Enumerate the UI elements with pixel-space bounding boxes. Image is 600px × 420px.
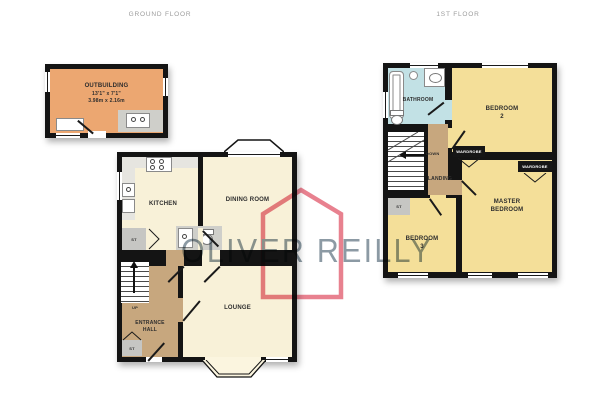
toilet-icon <box>391 115 403 125</box>
wardrobe-right: WARDROBE <box>518 161 552 172</box>
hob-ring-icon <box>159 165 164 170</box>
down-arrow-icon <box>399 151 406 159</box>
sink-icon <box>126 113 150 128</box>
stairs-down-label: DOWN <box>426 151 448 156</box>
wardrobe-door-icon <box>523 173 547 183</box>
floorplan-page: { "headers": { "ground": "GROUND FLOOR",… <box>0 0 600 420</box>
dining-room-label: DINING ROOM <box>203 197 292 205</box>
bedroom3-label-1: BEDROOM <box>388 236 456 244</box>
stairs-arrow-stem <box>133 267 135 293</box>
storage-label: ST <box>396 204 402 209</box>
bathroom-top-window <box>410 63 438 68</box>
master-door-opening <box>448 180 462 195</box>
hob-ring-icon <box>159 159 164 164</box>
sink-basin-icon <box>140 117 145 122</box>
wardrobe-left: WARDROBE <box>453 146 485 157</box>
stairs-up-label: UP <box>121 305 149 310</box>
outbuilding-window <box>56 133 80 138</box>
bedroom3-window <box>398 273 428 278</box>
bedroom2-label-2: 2 <box>452 114 552 122</box>
bedroom2-window <box>482 63 528 68</box>
outbuilding-counter <box>56 118 84 131</box>
wardrobe-door-icon <box>457 158 481 168</box>
round-basin-icon <box>409 71 418 80</box>
bathroom-side-window <box>383 92 388 118</box>
master-window <box>468 273 492 278</box>
lounge-label: LOUNGE <box>183 305 292 313</box>
kitchen-window <box>117 172 122 200</box>
stairs-up <box>121 262 149 303</box>
storage-label: ST <box>129 346 135 351</box>
storage-door-icon <box>122 331 142 341</box>
landing-floor <box>428 124 448 195</box>
entrance-hall-label-1: ENTRANCE <box>122 320 178 326</box>
kitchen-hall-opening <box>166 250 184 266</box>
up-arrow-icon <box>130 261 138 268</box>
cloakroom-basin-icon <box>182 234 187 239</box>
master-bedroom-label-2: BEDROOM <box>462 207 552 215</box>
kitchen-sink-basin-icon <box>126 187 131 192</box>
first-floor-title: 1ST FLOOR <box>393 11 523 18</box>
bedroom3-door-opening <box>430 195 446 198</box>
dining-bay-window <box>224 139 284 153</box>
outbuilding-dims-imperial: 13'1" x 7'1" <box>50 91 163 97</box>
lounge-bay-window <box>202 360 266 383</box>
hall-storage: ST <box>122 340 142 356</box>
master-bedroom-label-1: MASTER <box>462 199 552 207</box>
ground-floor-title: GROUND FLOOR <box>95 11 225 18</box>
outbuilding-dims-metric: 3.98m x 2.16m <box>50 98 163 104</box>
stairs-winders <box>388 132 424 164</box>
ground-storage-mid: ST <box>122 228 146 250</box>
outbuilding-label: OUTBUILDING <box>50 83 163 91</box>
lounge-opening <box>202 250 220 266</box>
outbuilding-window <box>163 78 168 96</box>
bedroom2-door-opening <box>448 128 452 148</box>
bedroom3-label-2: 3 <box>388 244 456 252</box>
bathroom-door-opening <box>445 100 452 120</box>
first-floor-storage: ST <box>388 198 410 215</box>
storage-label: ST <box>131 237 137 242</box>
hob-ring-icon <box>150 165 155 170</box>
master-window <box>518 273 548 278</box>
bathroom-sink-icon <box>429 73 442 83</box>
sink-basin-icon <box>131 117 136 122</box>
kitchen-label: KITCHEN <box>125 201 201 209</box>
bedroom2-label-1: BEDROOM <box>452 106 552 114</box>
bathroom-label: BATHROOM <box>390 97 446 103</box>
stairs-arrow-stem <box>406 154 426 156</box>
hob-ring-icon <box>150 159 155 164</box>
storage-bifold-door-icon <box>148 228 164 250</box>
lounge-window <box>266 357 288 362</box>
